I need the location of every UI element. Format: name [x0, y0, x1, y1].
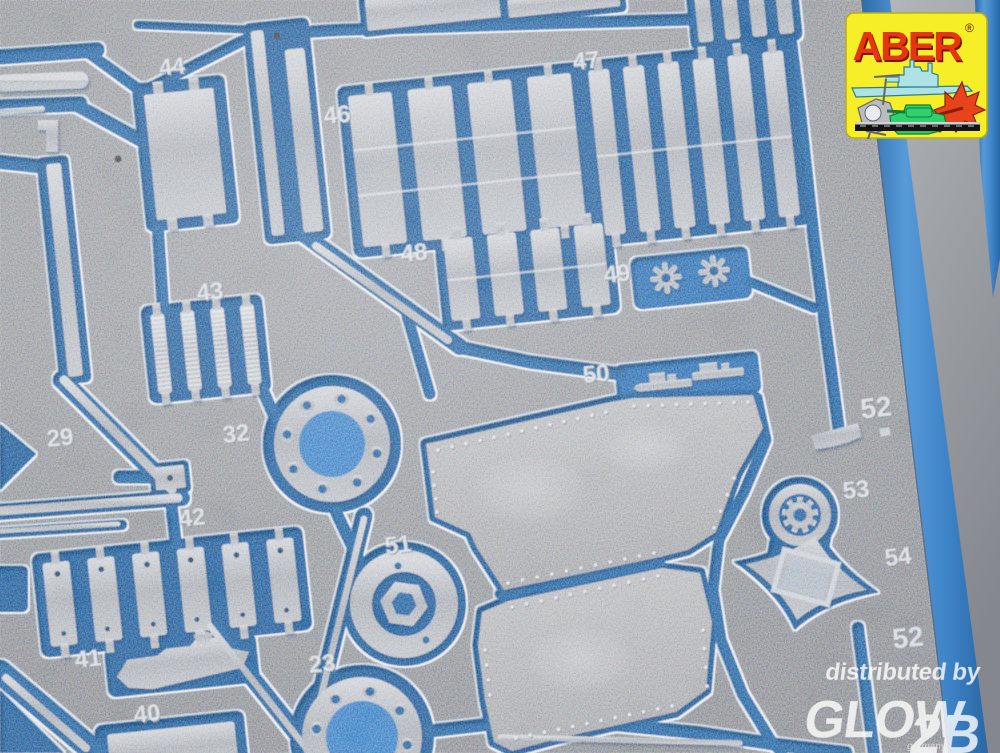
svg-text:®: ® [965, 21, 974, 35]
svg-text:ABER: ABER [853, 23, 963, 69]
svg-text:germany: germany [906, 741, 946, 752]
svg-text:distributed by: distributed by [824, 659, 983, 686]
